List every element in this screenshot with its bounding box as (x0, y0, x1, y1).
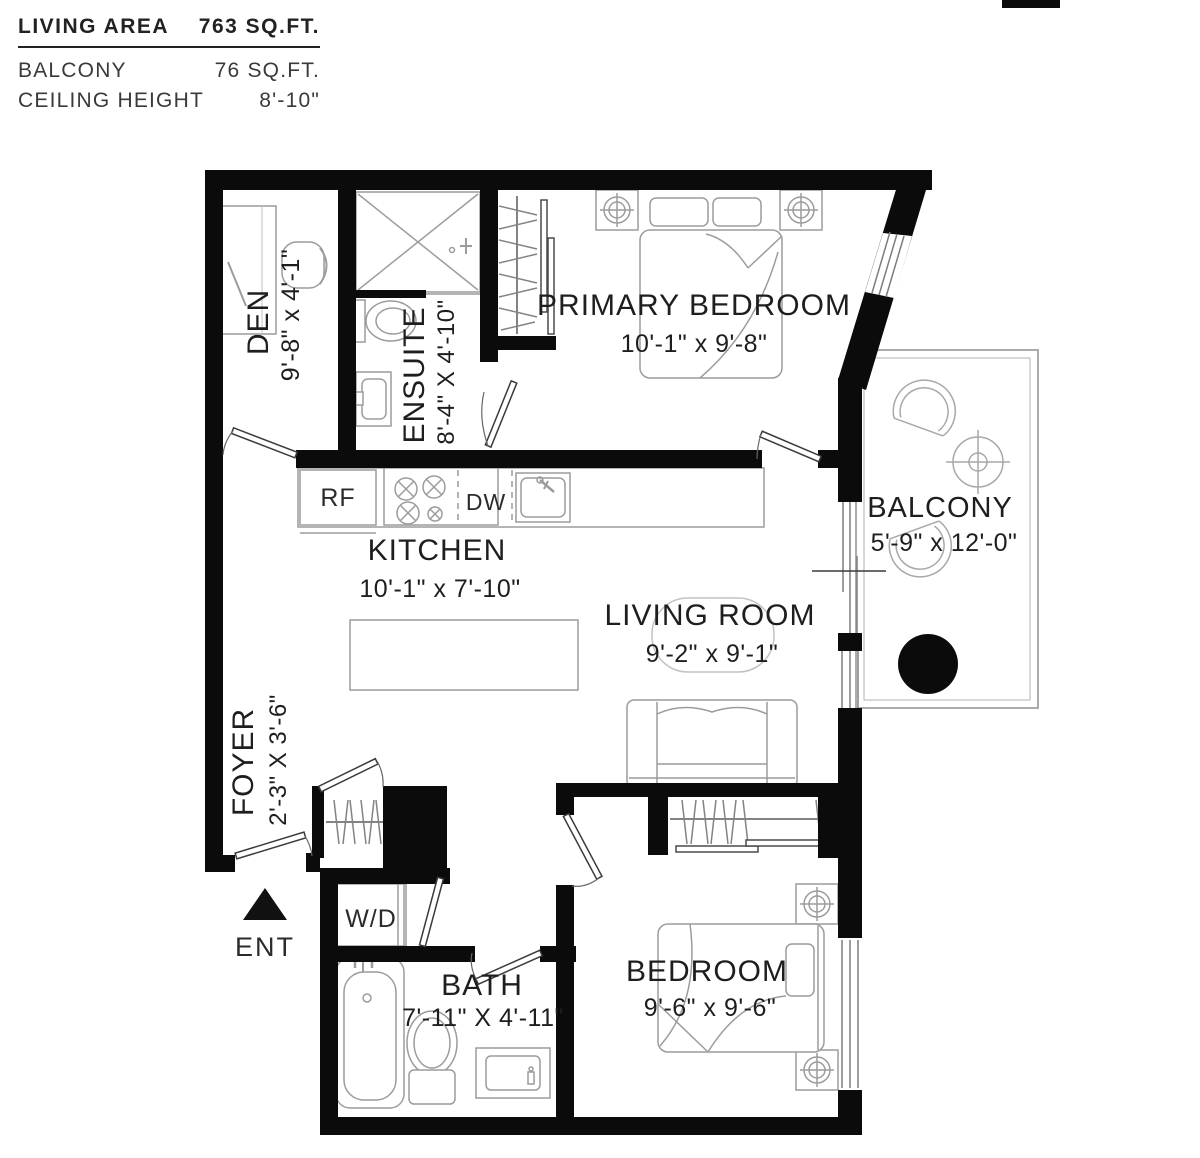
balcony-table (946, 430, 1010, 494)
bedroom-dims: 9'-6" x 9'-6" (644, 994, 776, 1022)
den-label: DEN (242, 289, 275, 355)
living-room-dims: 9'-2" x 9'-1" (646, 640, 778, 668)
kitchen-island (350, 620, 578, 690)
wall-closet-bottom (480, 336, 556, 350)
living-room-label: LIVING ROOM (604, 599, 815, 632)
ensuite-label: ENSUITE (398, 306, 431, 443)
fridge-label: RF (320, 484, 355, 512)
ensuite-shower (356, 192, 480, 292)
wall-bottom (320, 1117, 862, 1135)
den-dims: 9'-8" x 4'-1" (277, 249, 305, 381)
crop-artifact (1002, 0, 1060, 8)
wd-closet-door (420, 877, 444, 946)
entry-arrow-icon (243, 888, 287, 920)
bedroom-label: BEDROOM (626, 955, 788, 988)
entry-marker: ENT (235, 888, 295, 962)
wall-foyer-closet-left (312, 786, 324, 858)
primary-bedroom-dims: 10'-1" x 9'-8" (621, 330, 768, 358)
balcony-chair (889, 371, 964, 437)
wall-wd-top (320, 868, 450, 884)
wall-bedroom-closet-stub (648, 783, 668, 855)
primary-bedroom-door (757, 431, 821, 462)
ensuite-sink (356, 372, 391, 426)
entry-door (235, 832, 312, 859)
wall-bath-top-a (320, 946, 475, 962)
floor-plan-page: LIVING AREA 763 SQ.FT. BALCONY 76 SQ.FT.… (0, 0, 1200, 1158)
balcony-planter (898, 634, 958, 694)
bedroom-closet (670, 800, 836, 852)
floor-plan-drawing: ENT PRIMARY BEDROOM 10'-1" x 9'-8" KITCH… (0, 0, 1200, 1158)
bathtub (336, 956, 404, 1108)
wall-bedroom-closet-right (818, 783, 838, 858)
foyer-label: FOYER (227, 708, 260, 816)
kitchen-counter (298, 468, 764, 533)
pillow (786, 944, 814, 996)
foyer-closet (326, 800, 383, 844)
foyer-dims: 2'-3" X 3'-6" (265, 694, 292, 825)
wall-top (205, 170, 932, 190)
bedroom-window (842, 940, 858, 1088)
wall-right-1 (838, 378, 862, 502)
pillow (650, 198, 708, 226)
ensuite-door (482, 381, 517, 447)
bath-label: BATH (441, 969, 523, 1002)
washer-dryer-label: W/D (345, 905, 397, 933)
kitchen-label: KITCHEN (368, 534, 507, 567)
wall-den-ensuite (338, 190, 356, 452)
foyer-closet-door (319, 759, 383, 792)
wall-bedroom-left-b (556, 885, 574, 1117)
balcony-dims: 5'-9" x 12'-0" (871, 529, 1018, 557)
wall-right-2 (838, 633, 862, 651)
wall-foyer-bottom-left (205, 855, 235, 872)
wall-bedroom-top (556, 783, 838, 797)
sofa (627, 700, 797, 788)
kitchen-sink (516, 473, 570, 522)
wall-left (205, 170, 223, 872)
bath-dims: 7'-11" X 4'-11" (402, 1004, 564, 1032)
shower-curb (356, 290, 426, 298)
dishwasher-label: DW (466, 489, 506, 515)
wall-foyer-closet-right (383, 786, 447, 880)
window-diagonal (865, 232, 912, 298)
ensuite-dims: 8'-4" X 4'-10" (433, 299, 460, 444)
bath-vanity (476, 1048, 550, 1098)
kitchen-dims: 10'-1" x 7'-10" (359, 575, 520, 603)
wall-kitchen-top (296, 450, 762, 468)
den-door (223, 428, 297, 458)
primary-bedroom-label: PRIMARY BEDROOM (537, 289, 851, 322)
wall-right-3 (838, 708, 862, 938)
bedroom-door (563, 814, 602, 887)
wall-bath-left (320, 872, 338, 1117)
balcony-label: BALCONY (867, 492, 1013, 524)
pillow (713, 198, 761, 226)
entry-label: ENT (235, 932, 295, 962)
